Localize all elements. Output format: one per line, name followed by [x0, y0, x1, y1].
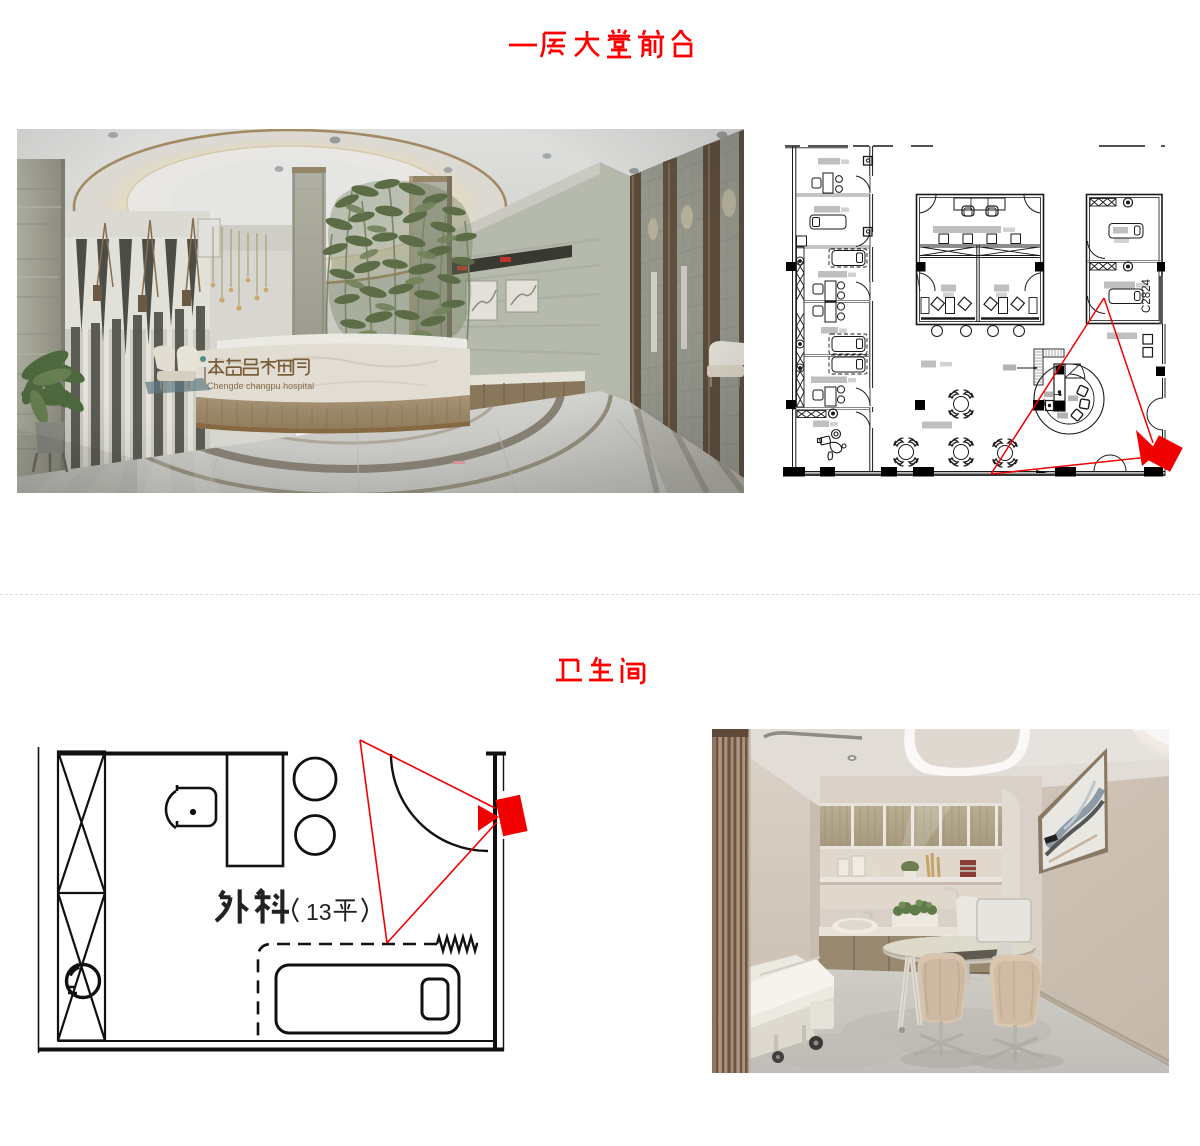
svg-text:C2824: C2824	[1141, 279, 1153, 313]
svg-text:13: 13	[306, 899, 332, 925]
